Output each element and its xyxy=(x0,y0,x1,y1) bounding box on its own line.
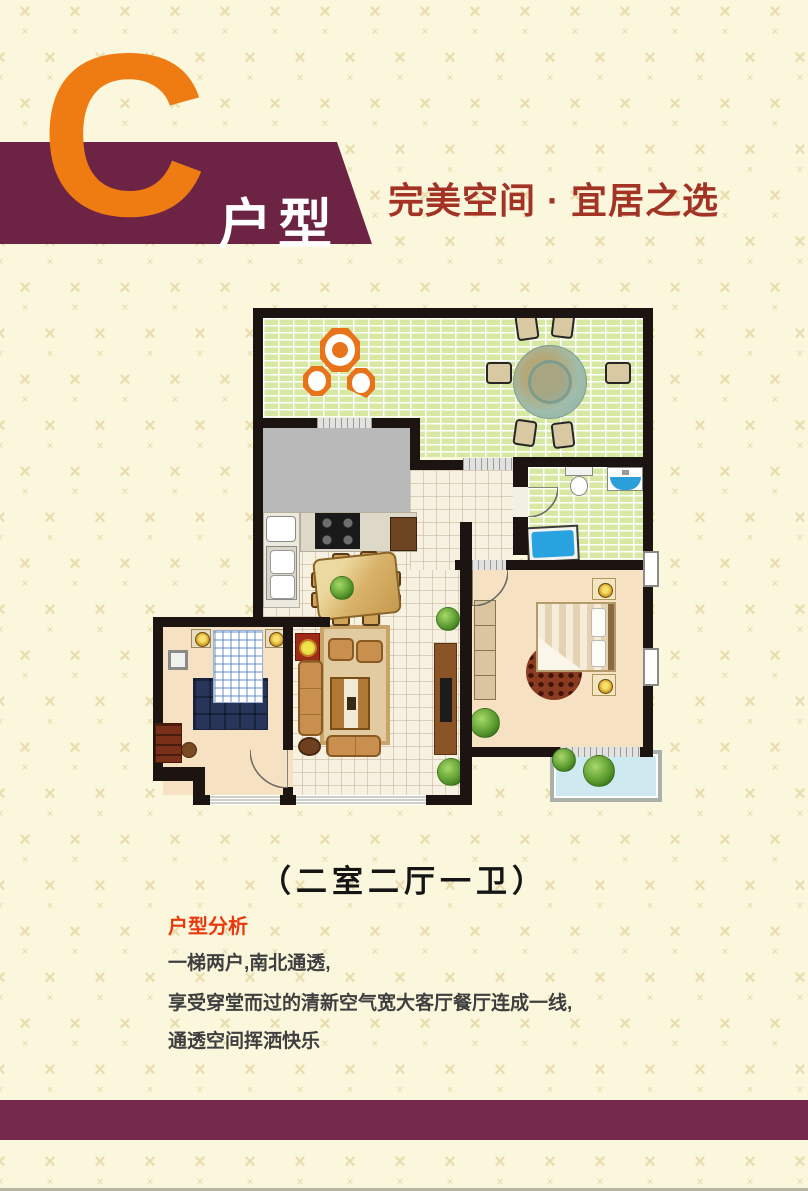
bedroom2-bed-quilt xyxy=(213,630,263,703)
kitchen-double-sink xyxy=(266,546,297,600)
sofa-bottom xyxy=(326,735,381,757)
dining-chair xyxy=(550,421,575,449)
bathtub xyxy=(526,525,580,564)
bistro-table xyxy=(320,328,360,372)
kitchen-appliance xyxy=(266,516,296,542)
wall-master-left xyxy=(460,522,472,795)
nightstand xyxy=(592,674,616,696)
living-room-window xyxy=(296,795,426,805)
bed-blanket-fold xyxy=(538,630,582,670)
bedroom2-window xyxy=(210,795,280,805)
armchair xyxy=(328,638,354,661)
analysis-line-2: 享受穿堂而过的清新空气宽大客厅餐厅连成一线, xyxy=(168,988,572,1015)
dining-chair xyxy=(605,362,631,384)
cutting-board xyxy=(390,517,417,551)
master-bed xyxy=(536,602,616,672)
dining-chair xyxy=(512,419,537,448)
bed-pillow xyxy=(591,608,606,637)
side-table-lamp xyxy=(295,633,320,661)
right-bay-window-1 xyxy=(643,551,659,587)
wall-bathroom-top xyxy=(513,457,643,467)
slogan-text: 完美空间 · 宜居之选 xyxy=(388,172,719,224)
wall-bedroom2-notch-h xyxy=(153,767,205,781)
poster-page: ××××××××××××××××××××××××××××××××××××××××… xyxy=(0,0,808,1191)
armchair xyxy=(356,640,383,663)
wall-outer-left xyxy=(253,318,263,618)
indoor-dining-table xyxy=(312,551,402,621)
analysis-line-3: 通透空间挥洒快乐 xyxy=(168,1026,320,1053)
bathroom-door-arc xyxy=(528,487,558,517)
right-bay-window-2 xyxy=(643,648,659,686)
terrace-door-sill xyxy=(317,418,372,428)
master-door-opening xyxy=(472,560,506,570)
master-wardrobe xyxy=(474,600,496,700)
bistro-chair-left xyxy=(303,366,331,396)
stove xyxy=(315,513,360,549)
footer-band xyxy=(0,1100,808,1140)
bedroom2-shelf xyxy=(155,723,182,763)
bedroom2-nightlamp xyxy=(265,629,285,648)
wall-outer-top xyxy=(253,308,653,318)
hall-terrace-opening xyxy=(463,458,513,470)
unit-type-label: 户型 xyxy=(218,180,338,259)
bedroom2-nightlamp xyxy=(191,629,211,648)
dining-chair xyxy=(486,362,512,384)
layout-caption: （二室二厅一卫） xyxy=(0,856,808,901)
void-area xyxy=(263,428,410,512)
nightstand xyxy=(592,578,616,600)
bedroom2-stool xyxy=(181,742,197,758)
wall-bedroom2-notch-v xyxy=(193,781,205,805)
bed-headboard xyxy=(608,604,614,670)
wall-terrace-bottom-mid xyxy=(410,460,463,470)
balcony-plant-small xyxy=(552,748,576,772)
table-plant xyxy=(330,576,354,600)
bed-pillow xyxy=(591,640,606,667)
balcony-plant-large xyxy=(583,755,615,787)
sofa-left xyxy=(298,660,323,736)
analysis-heading: 户型分析 xyxy=(168,910,248,939)
ottoman xyxy=(298,737,321,756)
wall-bedroom2-top xyxy=(153,617,330,627)
toilet xyxy=(565,465,593,497)
block-letter: C xyxy=(40,50,202,235)
outdoor-dining-table xyxy=(513,345,587,419)
master-plant xyxy=(470,708,500,738)
floor-plan xyxy=(153,305,665,817)
tv-cabinet xyxy=(434,643,457,755)
bathroom-sink xyxy=(607,467,643,491)
coffee-table xyxy=(330,677,370,730)
master-door-arc xyxy=(472,570,508,606)
living-plant-top xyxy=(436,607,460,631)
bedroom2-door-arc xyxy=(250,750,288,788)
analysis-line-1: 一梯两户,南北通透, xyxy=(168,948,331,975)
bathroom-door-opening xyxy=(513,487,528,517)
wall-picture-frame xyxy=(168,650,188,670)
